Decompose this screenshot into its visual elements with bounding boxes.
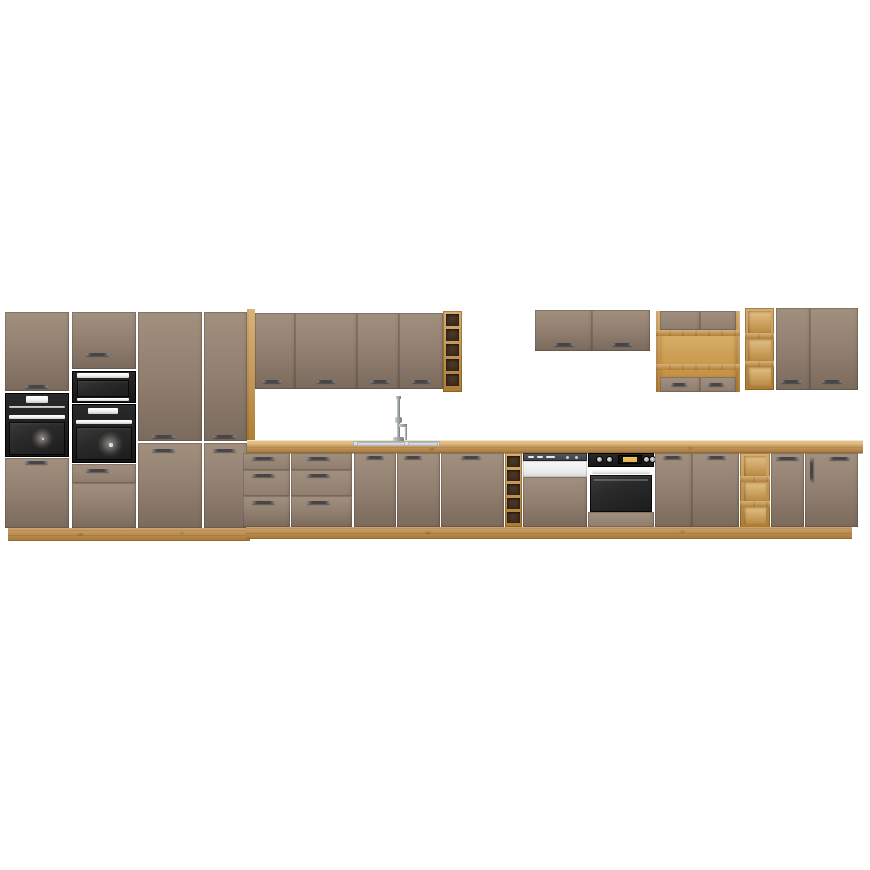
shelf-unit-small-door-right-handle <box>708 383 724 386</box>
faucet-spout-down <box>405 426 407 440</box>
tall-column-a-lower-door-handle <box>25 461 48 464</box>
oven-handle-bar <box>592 469 650 474</box>
tall-column-b-drawer <box>72 464 136 483</box>
wall-cabinet-door-1 <box>255 313 295 389</box>
drawer-unit-2-middle-handle <box>307 474 330 477</box>
wide-base-door-handle <box>461 456 481 459</box>
dishwasher-furniture-panel <box>523 477 587 527</box>
compact-oven-a-display <box>26 396 48 403</box>
wall-open-rack-cell-2 <box>748 339 771 361</box>
wall-open-rack-cell-3 <box>748 367 771 386</box>
faucet-joint <box>395 417 402 423</box>
sink-cabinet-door-left <box>354 453 396 527</box>
wall-cabinet-door-4 <box>399 313 443 389</box>
base-wine-rack-cell-2 <box>507 470 520 481</box>
oven-housing-base-drawer <box>588 512 654 527</box>
oven-b-display <box>88 408 118 414</box>
kitchen-product-image <box>0 0 870 870</box>
oven-display-amber <box>623 457 637 462</box>
shelf-unit-right-side <box>736 311 740 392</box>
short-wall-cabinet-door-right-handle <box>612 343 632 346</box>
shelf-unit-top-panel-left <box>660 311 700 330</box>
shelf-unit-shelf-2 <box>656 364 740 370</box>
base-wine-rack-cell-4 <box>507 498 520 509</box>
wall-cabinet-door-3 <box>357 313 399 389</box>
tall-column-c-upper-door <box>138 312 202 441</box>
tall-column-a-upper-door <box>5 312 69 391</box>
base-open-shelf-cell-1 <box>744 456 766 476</box>
drawer-unit-2-top-handle <box>307 457 330 460</box>
base-door-2 <box>692 453 739 527</box>
wide-base-door <box>441 453 504 527</box>
compact-oven-a-handle-bar <box>9 415 65 419</box>
drawer-unit-1-middle-handle <box>252 474 275 477</box>
microwave-b-handle-bar <box>77 398 129 401</box>
countertop-front-edge <box>247 445 863 453</box>
base-door-3 <box>771 453 804 527</box>
tall-column-a-lower-door <box>5 458 69 528</box>
wall-cabinet-door-2 <box>295 313 357 389</box>
shelf-unit-shelf-1 <box>656 330 740 336</box>
wall-cabinet-door-3-handle <box>371 380 389 383</box>
oven-knob-1 <box>597 457 602 462</box>
right-tall-wall-cabinet-door-left <box>776 308 810 390</box>
tall-column-b-drawer-handle <box>86 469 109 472</box>
sink-drainer <box>408 442 438 446</box>
drawer-unit-1-top-handle <box>252 457 275 460</box>
dishwasher-control-tick-1 <box>528 456 534 458</box>
oven-knob-2 <box>607 457 612 462</box>
compact-oven-a-control-strip <box>9 406 65 408</box>
wall-wine-rack-cell-2 <box>446 329 459 341</box>
shelf-unit-top-panel-right <box>700 311 736 330</box>
oven-a-fan <box>32 428 54 450</box>
drawer-unit-1-top <box>243 453 290 470</box>
tall-column-d-upper-door <box>204 312 247 441</box>
drawer-unit-1-bottom-handle <box>252 501 275 504</box>
wall-wine-rack-cell-4 <box>446 359 459 371</box>
base-wine-rack-cell-3 <box>507 484 520 495</box>
short-wall-cabinet-door-left-handle <box>554 343 574 346</box>
shelf-unit-small-door-left-handle <box>671 383 687 386</box>
tall-column-c-lower-door-handle <box>152 449 175 452</box>
base-door-4-vertical-handle <box>810 458 813 483</box>
wall-wine-rack-cell-3 <box>446 344 459 356</box>
dishwasher-control-dot-2 <box>575 456 578 459</box>
base-door-4-handle <box>829 457 850 460</box>
dishwasher-control-tick-3 <box>546 456 555 458</box>
right-tall-wall-cabinet-door-right <box>810 308 858 390</box>
tall-column-b-upper-door-handle <box>86 353 109 356</box>
tall-column-d-lower-door-handle <box>213 449 236 452</box>
base-wine-rack-cell-1 <box>507 456 520 467</box>
base-door-1 <box>655 453 692 527</box>
wall-wine-rack-cell-1 <box>446 314 459 326</box>
base-door-3-handle <box>776 457 799 460</box>
tall-section-oak-side-panel <box>247 309 255 441</box>
sink-cabinet-door-right-handle <box>404 456 422 459</box>
wall-wine-rack-cell-5 <box>446 374 459 386</box>
faucet-base <box>393 437 404 441</box>
sink-cabinet-door-left-handle <box>366 456 384 459</box>
oven-glass-reflection <box>594 479 648 481</box>
wall-cabinet-door-4-handle <box>412 380 430 383</box>
microwave-b-display-strip <box>77 373 129 378</box>
right-tall-wall-cabinet-door-left-handle <box>781 380 801 383</box>
wall-cabinet-door-1-handle <box>263 380 281 383</box>
oven-knob-3 <box>644 457 649 462</box>
base-open-shelf-cell-2 <box>744 482 766 501</box>
base-wine-rack-cell-5 <box>507 512 520 523</box>
oven-b-handle-bar <box>76 420 132 424</box>
sink-cabinet-door-right <box>397 453 440 527</box>
base-door-2-handle <box>707 456 726 459</box>
base-open-shelf-cell-3 <box>744 507 766 524</box>
drawer-unit-2-bottom-handle <box>307 501 330 504</box>
wall-cabinet-door-2-handle <box>317 380 335 383</box>
wall-open-rack-cell-1 <box>748 311 771 333</box>
tall-column-b-lower-door <box>72 483 136 528</box>
tall-column-d-upper-door-handle <box>213 435 236 438</box>
dishwasher-control-tick-2 <box>537 456 543 458</box>
oven-b-fan <box>98 432 124 458</box>
base-door-1-handle <box>663 456 682 459</box>
tall-column-c-lower-door <box>138 443 202 528</box>
tall-column-b-upper-door <box>72 312 136 369</box>
microwave-b-glass <box>77 380 129 397</box>
dishwasher-control-dot-1 <box>566 456 569 459</box>
dishwasher-white-band <box>523 461 587 477</box>
tall-column-d-lower-door <box>204 443 247 528</box>
right-tall-wall-cabinet-door-right-handle <box>822 380 842 383</box>
tall-section-plinth <box>8 528 250 541</box>
drawer-unit-2-top <box>291 453 352 470</box>
tall-column-c-upper-door-handle <box>152 435 175 438</box>
tall-column-a-upper-door-handle <box>25 385 48 388</box>
sink-basin <box>357 442 405 446</box>
faucet-top-cap <box>396 396 401 399</box>
base-run-plinth <box>246 527 852 539</box>
